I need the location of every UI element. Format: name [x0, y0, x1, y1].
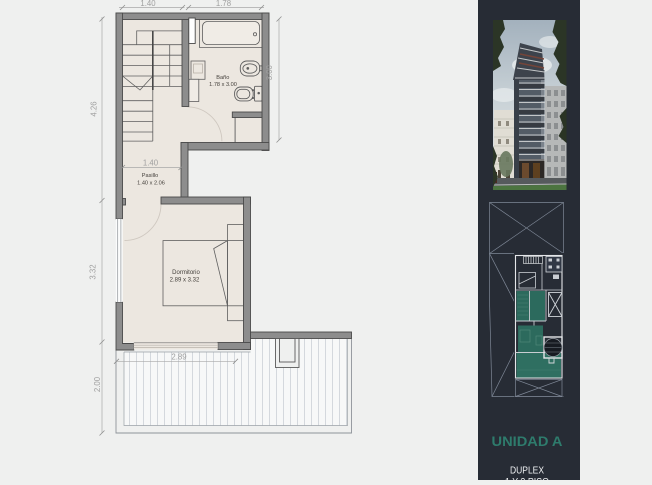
- svg-text:1.40: 1.40: [143, 159, 159, 168]
- svg-text:3.32: 3.32: [89, 264, 98, 279]
- svg-text:1.40: 1.40: [140, 0, 156, 8]
- svg-text:3.00: 3.00: [265, 64, 274, 80]
- svg-text:2.89 x 3.32: 2.89 x 3.32: [170, 278, 200, 284]
- svg-text:1.78 x 3.00: 1.78 x 3.00: [209, 82, 237, 88]
- svg-text:1.78: 1.78: [216, 0, 231, 8]
- svg-text:Pasillo: Pasillo: [142, 173, 158, 179]
- svg-text:UNIDAD A: UNIDAD A: [492, 433, 563, 449]
- svg-text:1.40 x 2.06: 1.40 x 2.06: [137, 181, 165, 187]
- svg-text:2.00: 2.00: [93, 376, 102, 392]
- svg-text:2.89: 2.89: [171, 353, 186, 362]
- svg-text:Dormitorio: Dormitorio: [172, 270, 200, 276]
- svg-text:4.26: 4.26: [90, 101, 99, 116]
- svg-text:DUPLEX: DUPLEX: [510, 466, 544, 477]
- svg-text:Baño: Baño: [216, 75, 229, 81]
